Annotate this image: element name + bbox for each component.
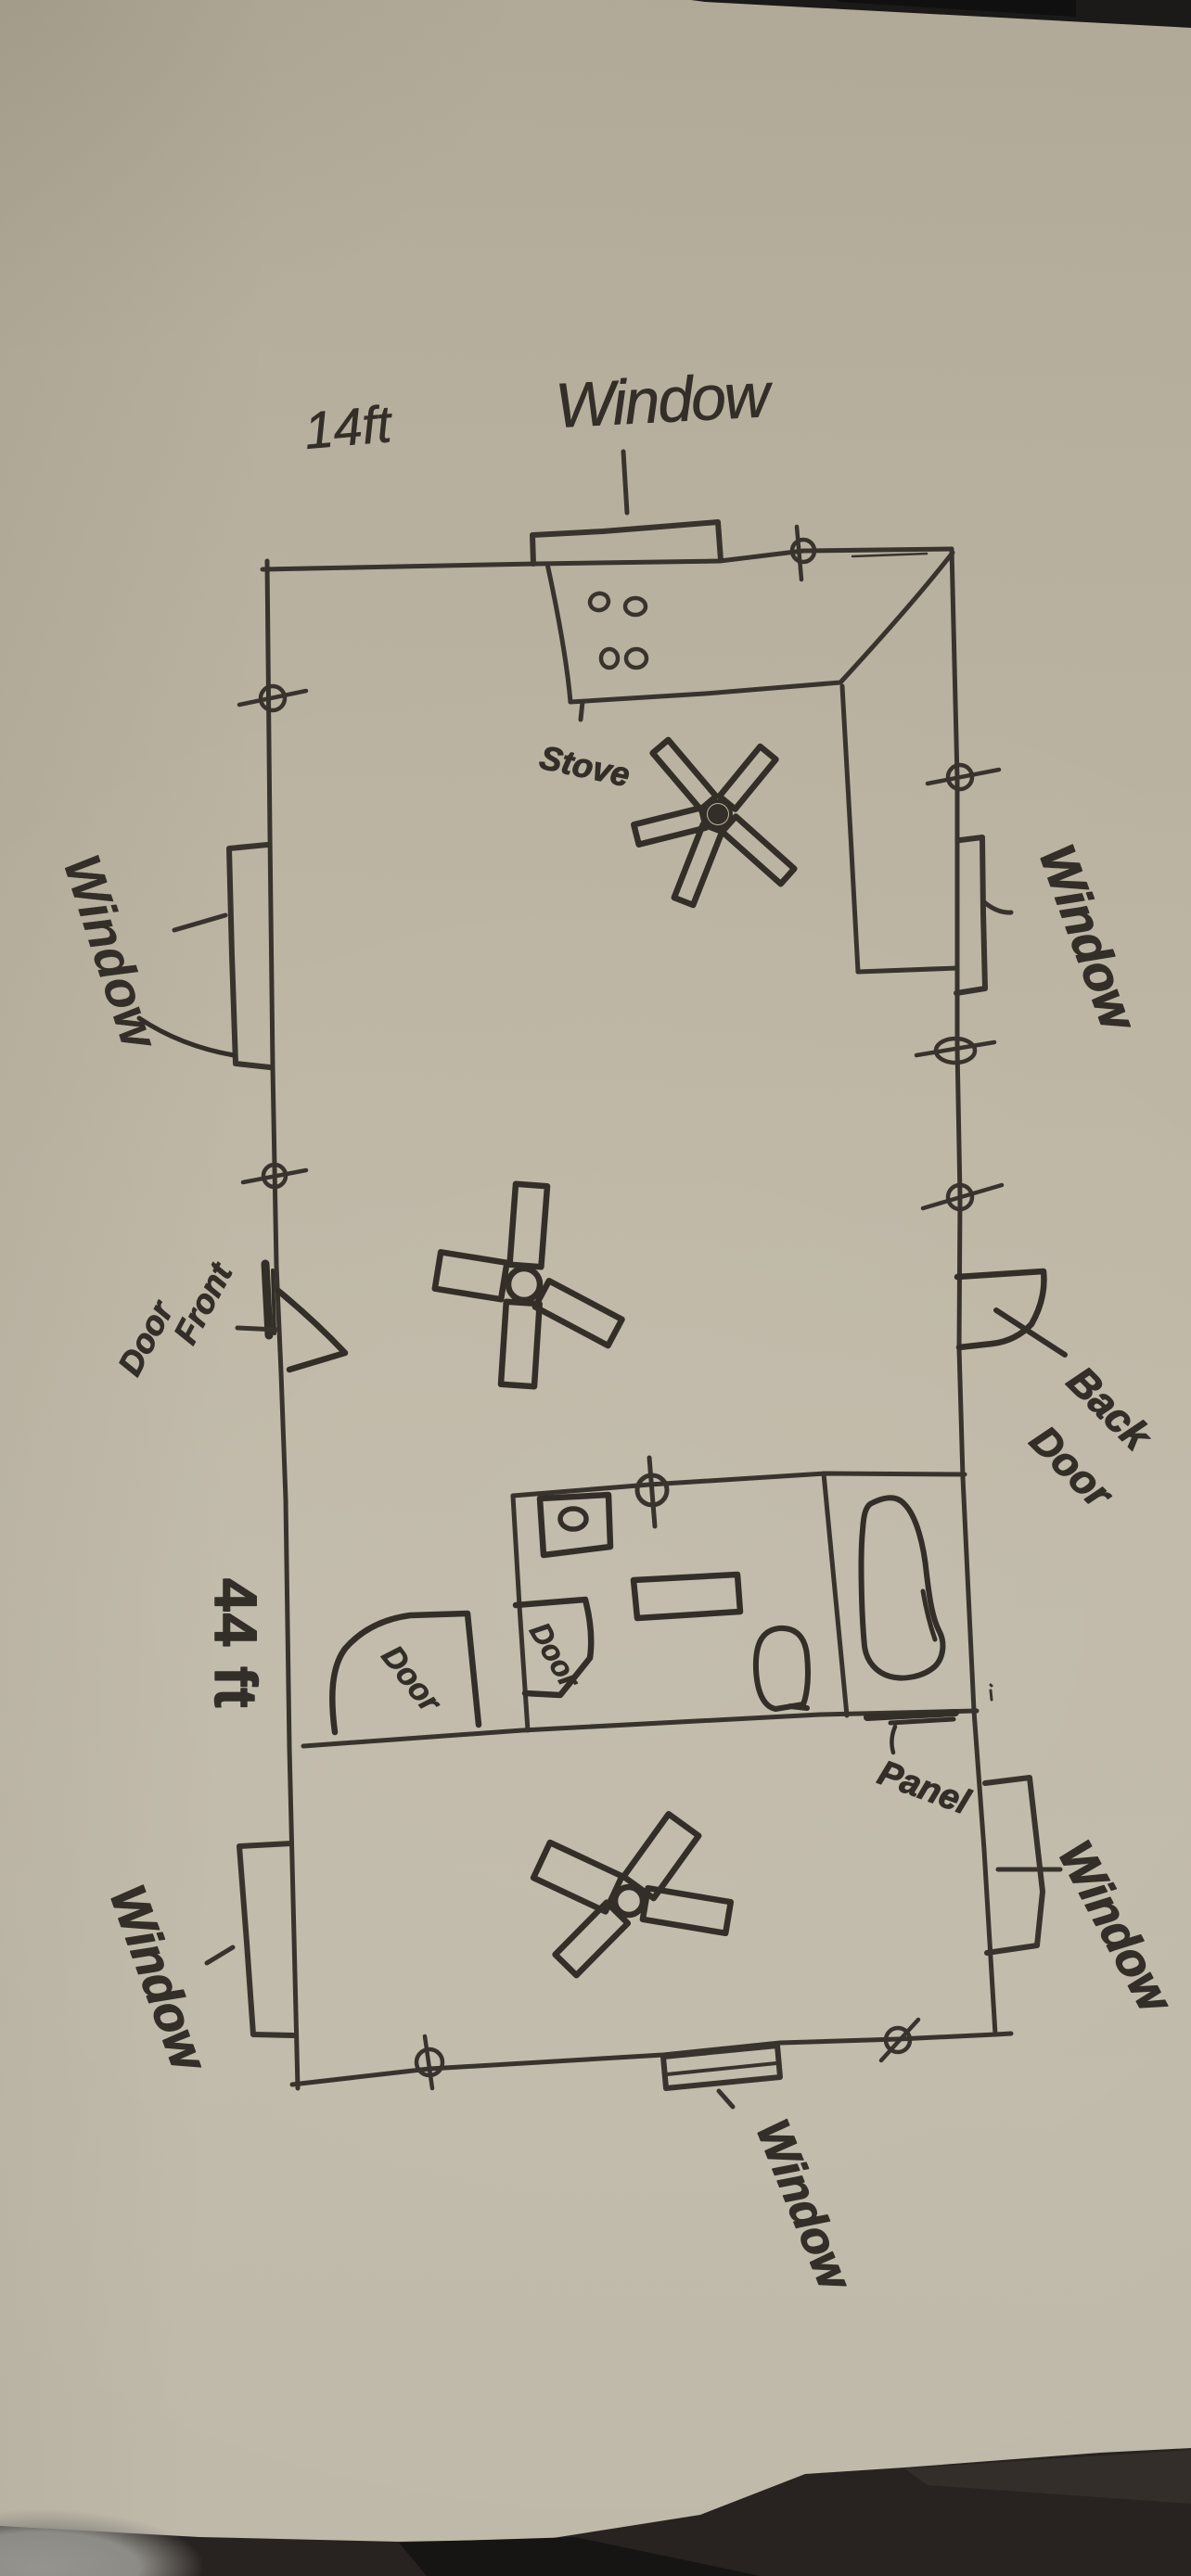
svg-text:Door: Door: [375, 1639, 449, 1720]
svg-text:44 ft: 44 ft: [202, 1578, 269, 1710]
svg-text:Window: Window: [99, 1879, 218, 2080]
svg-text:14ft: 14ft: [302, 394, 396, 460]
svg-text:Stove: Stove: [536, 738, 633, 794]
svg-text:Window: Window: [1047, 1832, 1183, 2023]
svg-text:Window: Window: [554, 360, 775, 441]
svg-text:Window: Window: [747, 2112, 863, 2299]
svg-text:Door: Door: [523, 1617, 587, 1695]
svg-text:Door: Door: [110, 1294, 182, 1382]
svg-text:Panel: Panel: [873, 1753, 976, 1823]
svg-text:Window: Window: [1029, 838, 1147, 1039]
svg-text:Front: Front: [166, 1256, 240, 1350]
